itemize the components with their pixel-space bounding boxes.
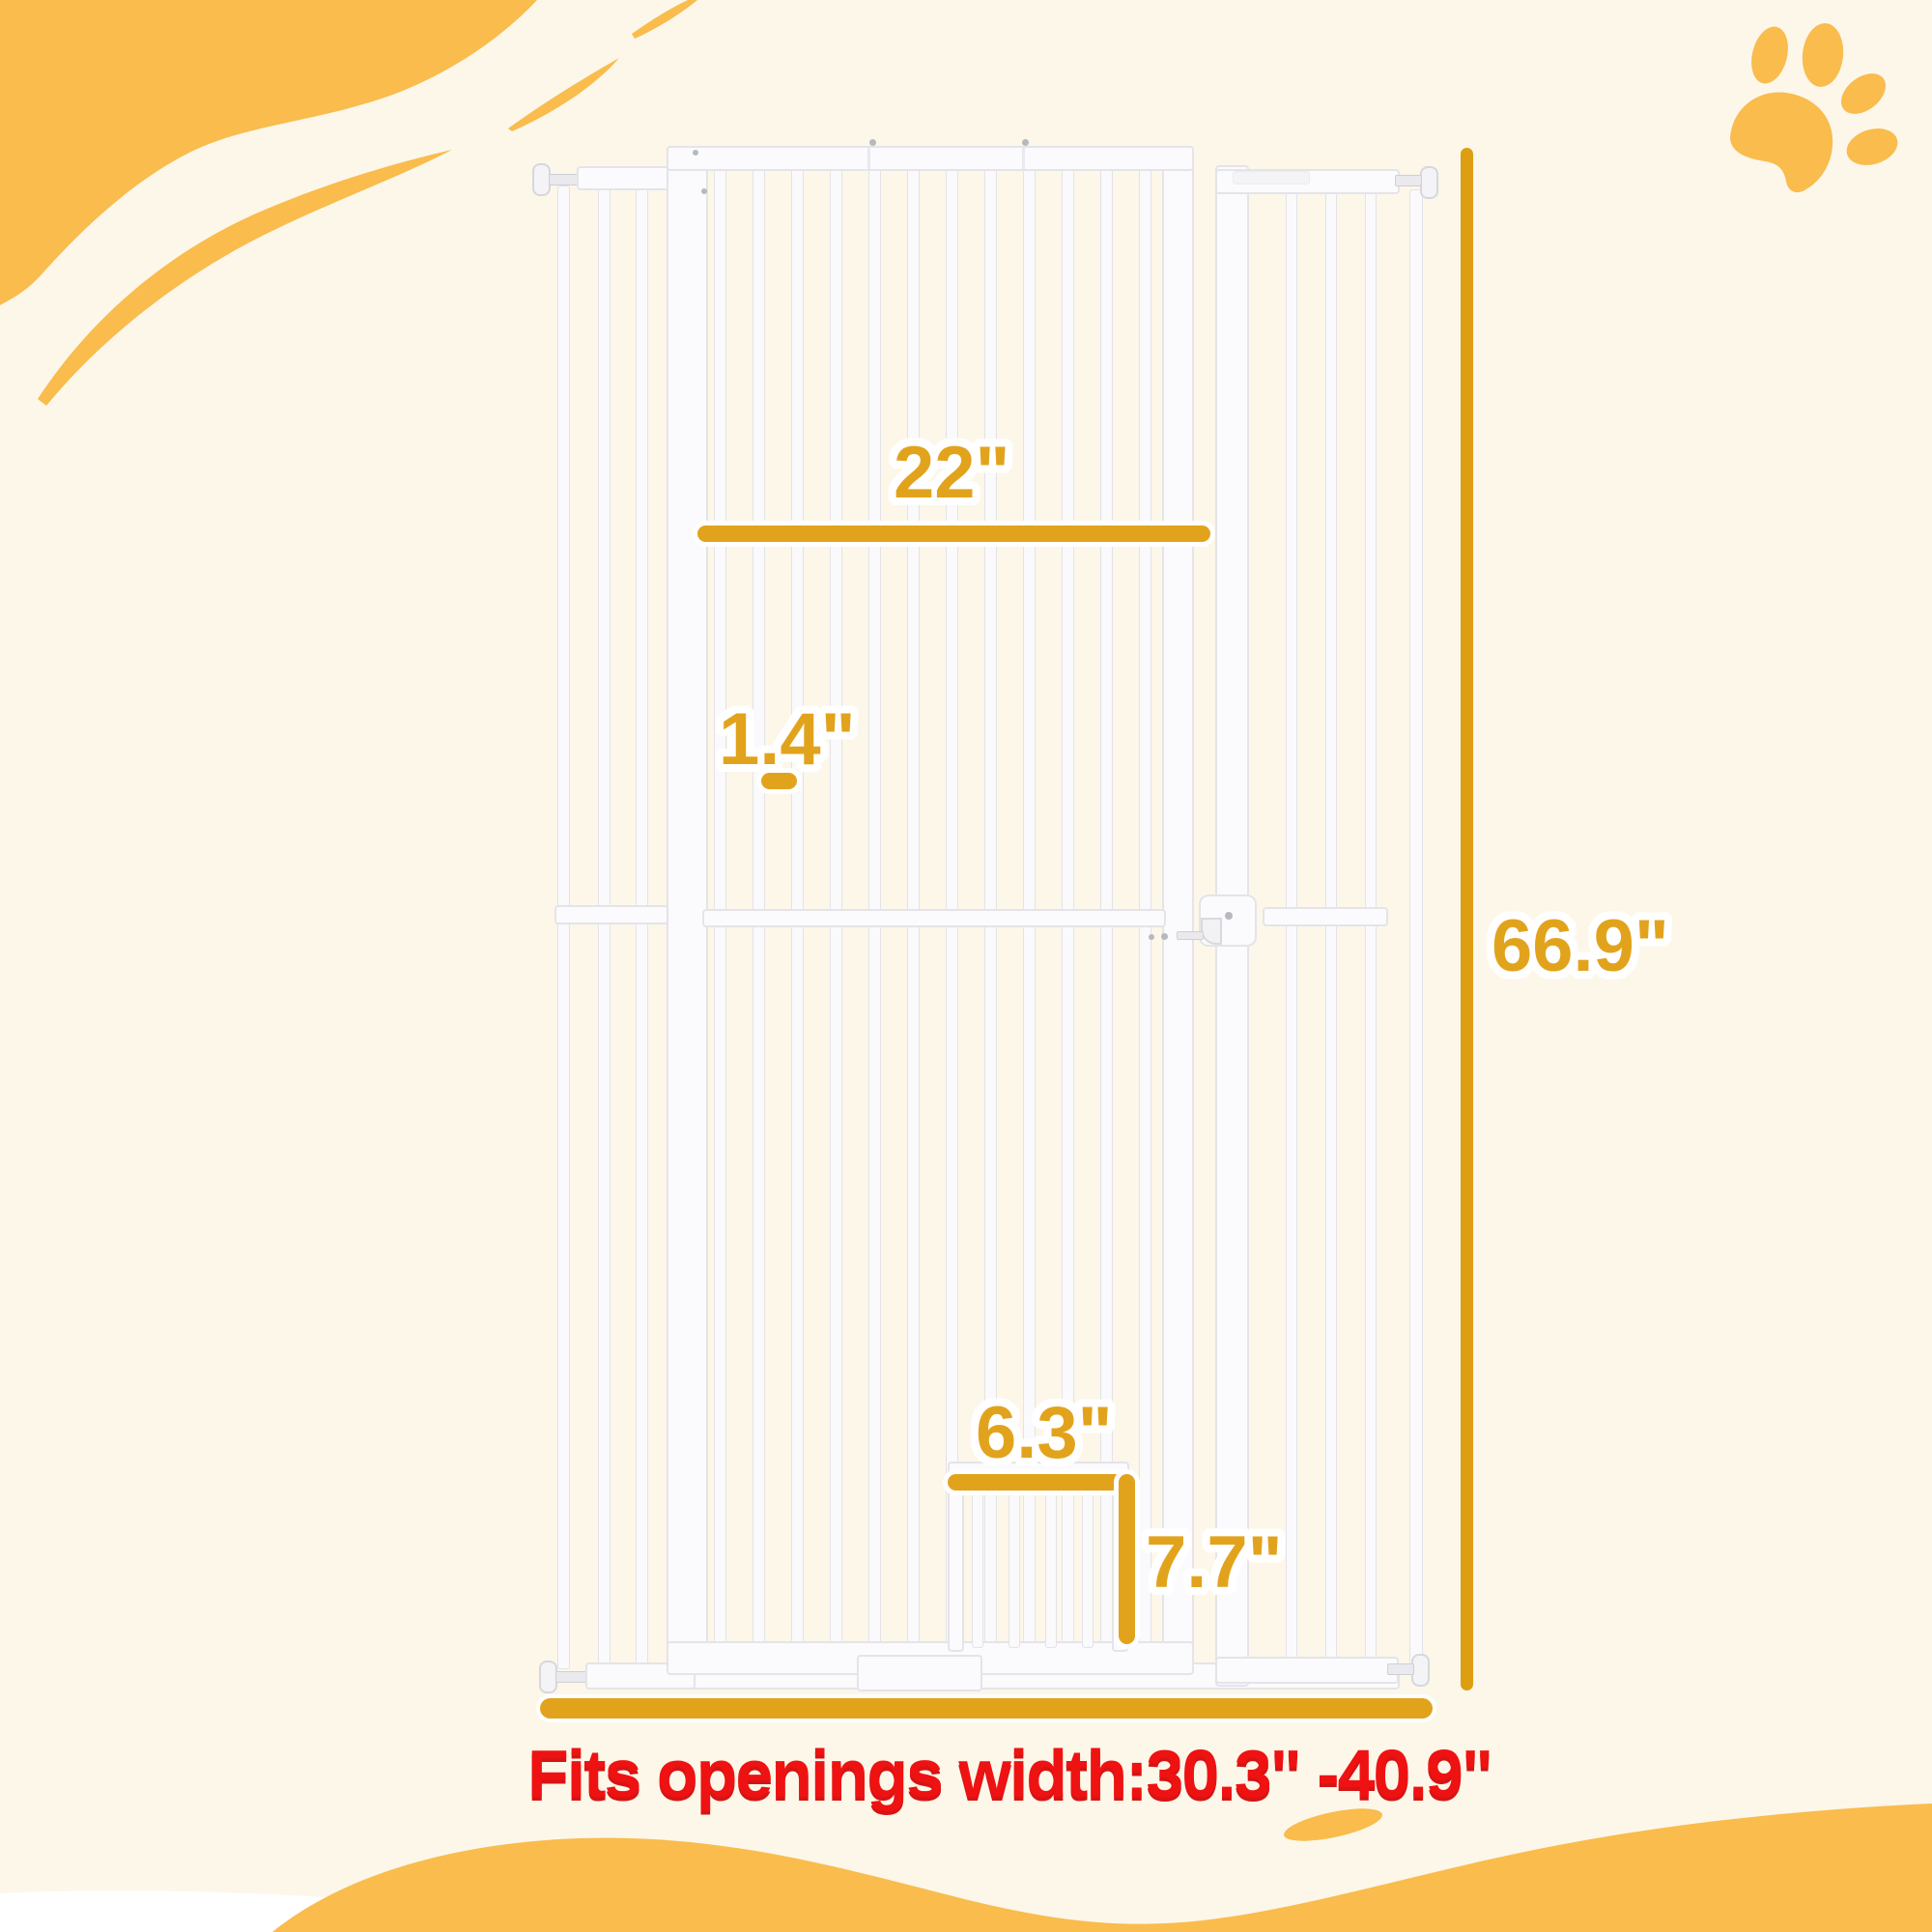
swoosh-top-left <box>0 0 537 305</box>
door-right-stile <box>1162 146 1194 1672</box>
swoosh-crescent-tip <box>632 0 697 39</box>
screw <box>701 188 707 194</box>
door-top-rail <box>667 146 1194 171</box>
right-top-wall-cup <box>1420 166 1438 199</box>
dimension-label-bar-gap: 1.4" <box>719 703 856 777</box>
dimension-bar-pet-door-height <box>1119 1474 1135 1644</box>
screw <box>1225 912 1233 920</box>
top-rail-seam <box>1022 148 1025 169</box>
dimension-label-door-width: 22" <box>894 437 1010 510</box>
dimension-bar-pet-door-width <box>948 1474 1130 1491</box>
dimension-bar-door-width <box>697 526 1210 542</box>
left-extension-bar <box>598 188 611 1666</box>
right-top-rail-detail <box>1233 171 1310 185</box>
right-bottom-rail <box>1215 1657 1399 1684</box>
right-mid-bracket <box>1263 907 1388 926</box>
screw <box>869 139 876 146</box>
top-rail-seam <box>867 148 870 169</box>
screw <box>1149 934 1154 940</box>
dimension-label-pet-door-width: 6.3" <box>976 1397 1113 1470</box>
left-top-spindle <box>549 174 580 185</box>
pet-door-bar <box>972 1486 983 1648</box>
gate-latch-pin <box>1177 931 1204 940</box>
right-bottom-spindle <box>1387 1663 1414 1675</box>
door-bar <box>1139 166 1151 1644</box>
screw <box>1022 139 1029 146</box>
door-bar <box>791 166 804 1644</box>
left-bottom-spindle <box>555 1671 588 1683</box>
door-bar <box>907 166 920 1644</box>
right-wall-rod <box>1409 189 1423 1669</box>
fits-openings-caption: Fits openings width:30.3" -40.9" <box>77 1735 1932 1813</box>
door-left-stile <box>667 146 708 1672</box>
pet-door-bar <box>1009 1486 1020 1648</box>
door-bar <box>868 166 881 1644</box>
right-top-spindle <box>1395 175 1422 186</box>
paw-icon <box>1730 21 1902 192</box>
dimension-bar-opening-width <box>540 1698 1433 1719</box>
dimension-label-gate-height: 66.9" <box>1492 910 1669 983</box>
screw <box>693 150 698 156</box>
door-bar <box>753 166 765 1644</box>
screw <box>1161 933 1168 940</box>
left-mid-bracket <box>554 905 668 924</box>
dimension-label-pet-door-height: 7.7" <box>1146 1526 1283 1600</box>
dimension-line-gate-height <box>1461 148 1473 1690</box>
left-wall-rod <box>557 185 570 1669</box>
bottom-wave-orange <box>272 1804 1932 1932</box>
product-dimension-infographic: 22" 1.4" 6.3" 7.7" 66.9" Fits openings w… <box>0 0 1932 1932</box>
door-bar <box>946 166 958 1644</box>
door-bar <box>714 166 726 1644</box>
door-mid-rail <box>702 909 1166 927</box>
swoosh-crescent-small <box>508 58 619 131</box>
dimension-dash-bar-gap <box>761 773 797 789</box>
pet-door-bar <box>1045 1486 1057 1648</box>
door-bar <box>830 166 842 1644</box>
left-extension-bar <box>636 188 648 1666</box>
pet-door-bar <box>1082 1486 1094 1648</box>
bottom-tube-sleeve <box>857 1655 982 1691</box>
